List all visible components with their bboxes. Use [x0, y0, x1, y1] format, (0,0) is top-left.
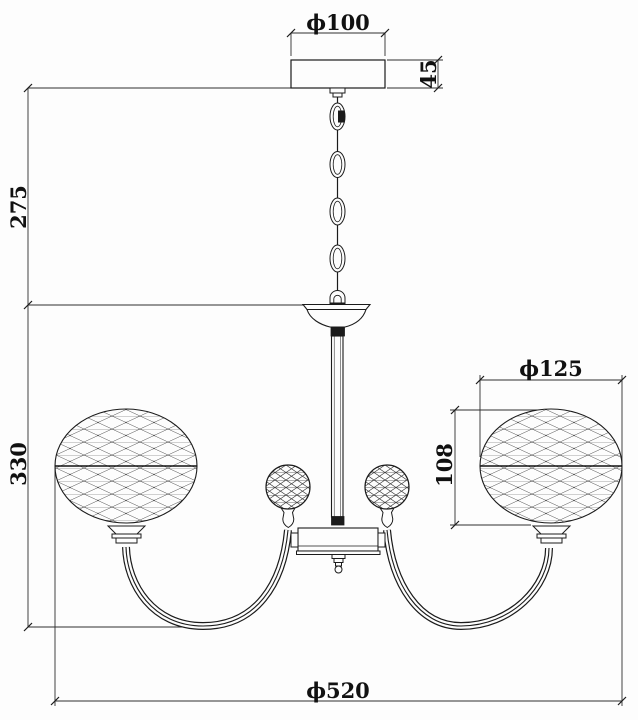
stem-column	[303, 305, 370, 526]
canopy-body	[291, 60, 385, 88]
finial	[332, 555, 345, 574]
dim-label-shade-diameter: ϕ125	[519, 356, 583, 381]
knurled-band-bottom	[332, 517, 345, 526]
crystal-ball-left	[266, 465, 310, 509]
bell-cap-flare	[307, 310, 366, 328]
dim-left-vertical-lines	[28, 88, 303, 627]
arm-right	[387, 530, 549, 626]
chain-link	[330, 198, 345, 225]
globe-left	[55, 409, 197, 523]
hub-bottom-plate	[297, 551, 381, 555]
finial-ball	[335, 566, 342, 573]
dimension-labels: ϕ100 45 275 330 ϕ125 108 ϕ520	[6, 10, 583, 703]
dim-label-suspension-height: 275	[6, 185, 31, 229]
dim-label-shade-height: 108	[432, 443, 457, 487]
dim-label-overall-diameter: ϕ520	[306, 678, 370, 703]
crystal-ball-right	[365, 465, 409, 509]
globe-right	[480, 409, 622, 523]
chain-link-clasp	[339, 111, 345, 122]
dim-label-canopy-height: 45	[416, 59, 441, 88]
suspension-chain	[330, 97, 345, 309]
canopy	[291, 60, 385, 97]
hub-tab-left	[291, 533, 298, 547]
column-tube	[332, 336, 344, 517]
ball-stem-left	[281, 507, 296, 528]
drawing-canvas: ϕ100 45 275 330 ϕ125 108 ϕ520	[0, 0, 638, 720]
knurled-band-top	[331, 328, 345, 337]
dim-canopy-diameter-lines	[291, 33, 385, 56]
hub	[291, 528, 385, 555]
chain-link	[330, 245, 345, 272]
canopy-collar	[330, 88, 345, 93]
ball-stem-right	[380, 507, 395, 528]
dim-label-body-height: 330	[6, 442, 31, 486]
arm-left	[126, 530, 288, 626]
socket-left	[108, 526, 145, 543]
hub-tab-right	[378, 533, 385, 547]
chain-link	[330, 152, 345, 178]
socket-right	[533, 526, 570, 543]
bell-cap-plate	[303, 305, 370, 310]
chandelier-dimension-drawing: ϕ100 45 275 330 ϕ125 108 ϕ520	[0, 0, 638, 720]
hub-body	[298, 528, 378, 551]
dim-label-canopy-diameter: ϕ100	[306, 10, 370, 35]
canopy-collar-neck	[333, 93, 342, 97]
